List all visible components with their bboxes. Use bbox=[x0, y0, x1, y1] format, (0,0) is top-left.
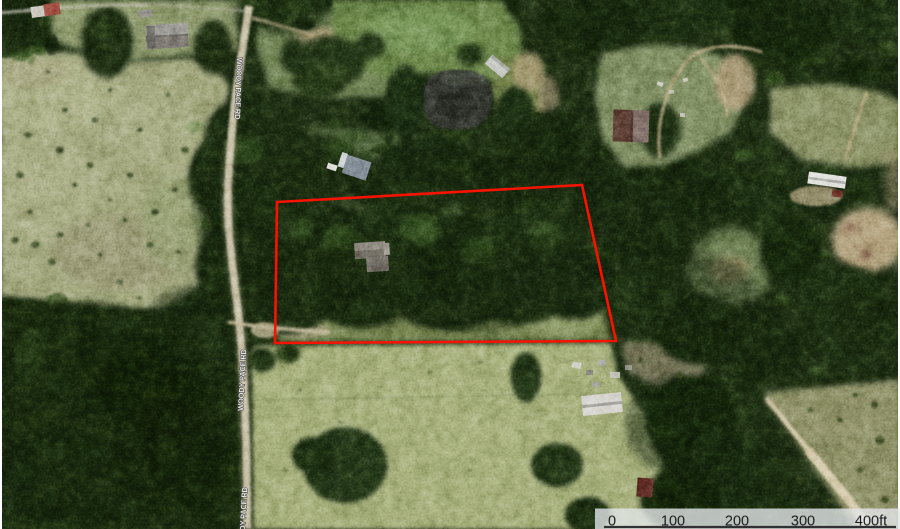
svg-text:300: 300 bbox=[791, 514, 815, 529]
svg-text:200: 200 bbox=[725, 514, 749, 529]
svg-text:400ft: 400ft bbox=[855, 514, 887, 529]
svg-text:0: 0 bbox=[608, 514, 616, 529]
svg-text:100: 100 bbox=[661, 514, 685, 529]
